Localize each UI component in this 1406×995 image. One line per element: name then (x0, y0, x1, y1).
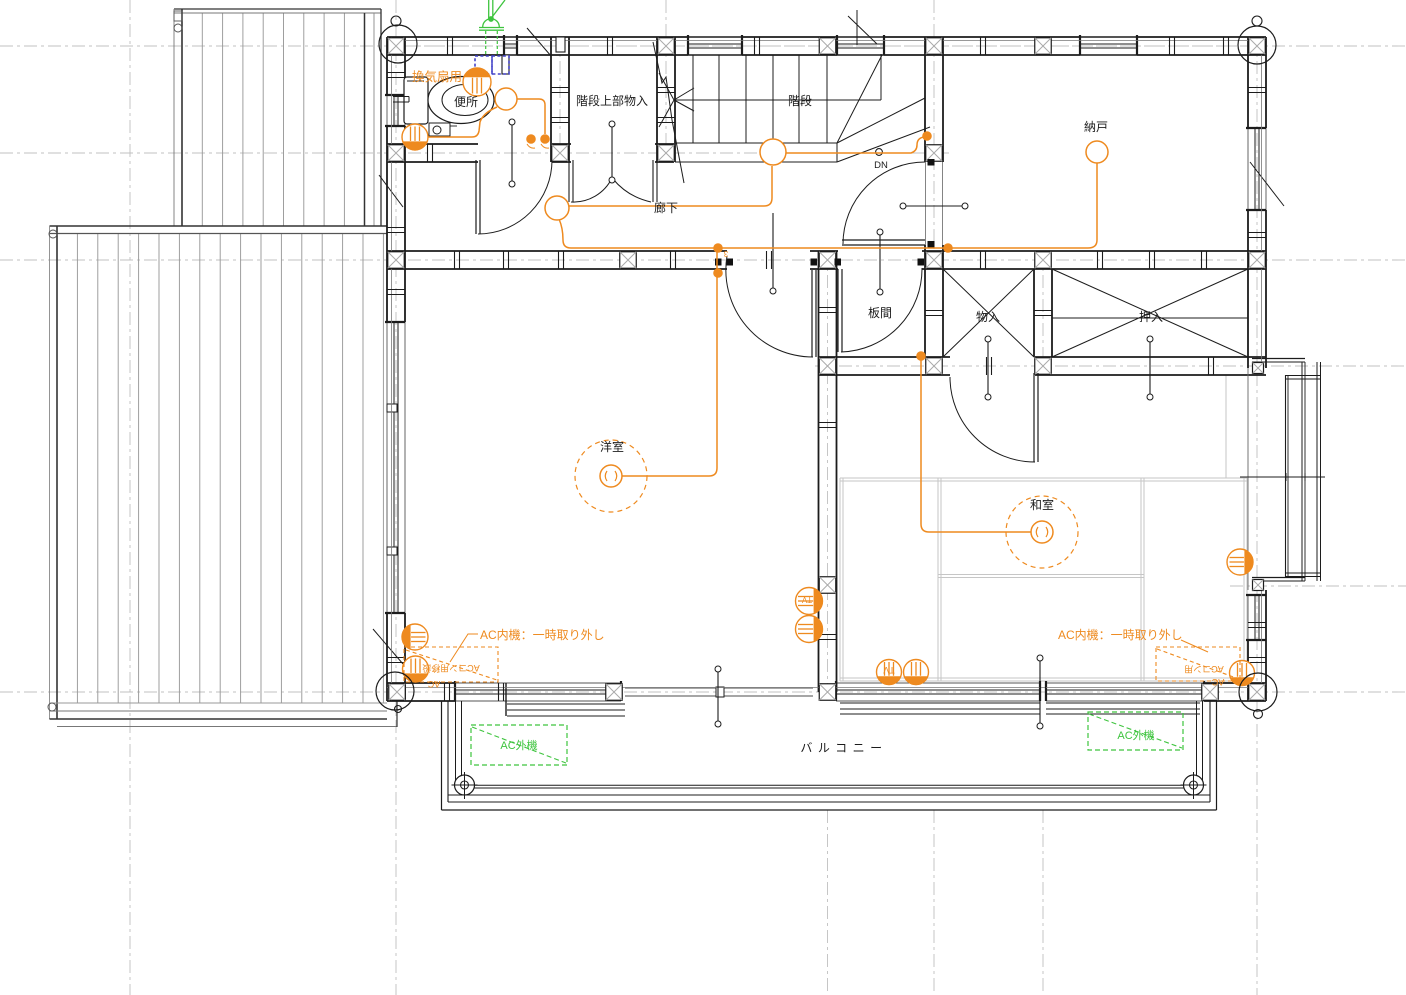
svg-text:押入: 押入 (1139, 310, 1163, 324)
svg-text:換気扇用: 換気扇用 (412, 69, 462, 84)
svg-text:物入: 物入 (976, 310, 1000, 324)
svg-text:廊下: 廊下 (654, 200, 678, 215)
svg-text:AC: AC (427, 679, 440, 689)
svg-text:AC内機：一時取り外し: AC内機：一時取り外し (1058, 627, 1183, 642)
svg-text:AC: AC (1211, 677, 1224, 687)
svg-text:階段上部物入: 階段上部物入 (576, 93, 648, 108)
svg-text:バルコニー: バルコニー (800, 741, 887, 755)
svg-text:3: 3 (723, 249, 728, 258)
svg-text:ACコン用移設: ACコン用移設 (422, 663, 480, 674)
svg-text:ACコン用: ACコン用 (1184, 664, 1224, 674)
svg-text:便所: 便所 (454, 95, 478, 109)
svg-text:AC内機：一時取り外し: AC内機：一時取り外し (480, 627, 605, 642)
svg-text:TV: TV (883, 665, 895, 675)
svg-text:洋室: 洋室 (600, 439, 624, 454)
svg-text:和室: 和室 (1030, 497, 1054, 512)
svg-text:AC外機: AC外機 (1117, 728, 1154, 742)
svg-text:納戸: 納戸 (1084, 120, 1108, 134)
svg-text:AC外機: AC外機 (500, 738, 537, 752)
svg-text:階段: 階段 (788, 93, 812, 108)
svg-text:TV: TV (801, 595, 812, 604)
svg-text:板間: 板間 (868, 306, 892, 320)
svg-text:DN: DN (874, 160, 888, 171)
